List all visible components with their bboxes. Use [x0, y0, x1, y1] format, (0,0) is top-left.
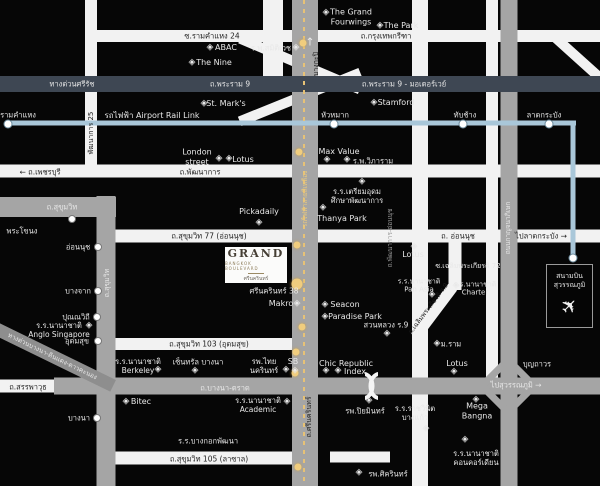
chic-republic-icon-1: ◈	[323, 367, 330, 376]
logo-title: GRAND	[228, 247, 285, 260]
samitivej-icon: ◈	[293, 44, 300, 53]
rajvinit-bangkaew-school-label: ร.ร.ราชวินิต บางแก้ว	[395, 404, 435, 422]
huamak-station-label: หัวหมาก	[321, 111, 349, 120]
arl-latkrabang-dot	[545, 120, 554, 129]
the-park-icon: ◈	[377, 22, 384, 31]
berkeley-icon: ◈	[155, 366, 162, 375]
phatthanakan-road-label: ถ.พัฒนาการ	[180, 168, 221, 177]
vibharam-hospital-label: ร.พ.วิภาราม	[353, 157, 393, 166]
mega-bangna-icon: ◈	[473, 396, 480, 405]
rama9-label: ถ.พระราม 9	[210, 80, 250, 89]
abac-icon: ◈	[207, 44, 214, 53]
pickadaily-label: Pickadaily	[239, 207, 279, 217]
anglo-singapore-icon: ◈	[86, 322, 93, 331]
srinakarin38-label: ศรีนครินทร์ 38	[250, 287, 299, 296]
thanya-park-label: Thanya Park	[317, 214, 366, 224]
vibharam-icon: ◈	[344, 156, 351, 165]
makro-label: Makro	[269, 299, 293, 309]
srinakarin-north-arrow: ↑	[305, 35, 314, 48]
phatthanakan-onnut-road-label: ถ.พัฒนาการ-อ่อนนุช	[387, 209, 395, 268]
yellow-station-dot-5	[299, 324, 306, 331]
bts-udomsuk-dot	[94, 337, 102, 345]
sukhumvit-road-label-vertical: ถ.สุขุมวิท	[103, 269, 111, 298]
expressway-sirat-label: ทางด่วนศรีรัช	[50, 80, 95, 89]
bangna-station-label: บางนา	[68, 414, 90, 423]
road-ramkhamhaeng24-krungthepkreetha	[88, 30, 600, 42]
triamudom-school-label: ร.ร.เตรียมอุดม ศึกษาพัฒนาการ	[331, 187, 383, 205]
st-marks-label: St. Mark's	[206, 99, 245, 109]
kanchanaphisek-road-label: ถนนกาญจนาภิเษก	[505, 202, 513, 255]
onnut-station-label: อ่อนนุช	[66, 243, 90, 252]
thai-nakarin-hospital-label: รพ.ไทย นครินทร์	[250, 357, 278, 375]
sukhumvit77-road-label: ถ.สุขุมวิท 77 (อ่อนนุช)	[171, 232, 246, 241]
airport-rail-link-label: รถไฟฟ้า Airport Rail Link	[104, 111, 199, 121]
charter-school-label: ร.ร.นานาชาติ Charter	[454, 281, 497, 298]
road-kanchanaphisek-west	[486, 0, 498, 378]
ram-university-icon: ◈	[434, 340, 441, 349]
road-top-center-stub	[263, 0, 283, 80]
triamudom-icon: ◈	[359, 178, 366, 187]
bts-punnawithi-dot	[93, 313, 101, 321]
st-marks-icon: ◈	[201, 100, 208, 109]
bts-bangna-dot	[93, 414, 101, 422]
abac-label: ABAC	[215, 43, 237, 53]
logo-thai-name: ศรีนครินทร์	[244, 275, 269, 283]
suvarnabhumi-airport-box: สนามบิน สุวรรณภูมิ ✈	[546, 264, 593, 328]
arl-thapchang-dot	[459, 120, 468, 129]
london-street-label: London street	[182, 147, 211, 166]
sikarin-hospital-label: รพ.ศิครินทร์	[368, 470, 407, 479]
rail-airport-link-branch	[571, 123, 576, 259]
suan-luang-icon: ◈	[384, 330, 391, 339]
ramkhamhaeng-station-label: รามคำแหง	[0, 111, 36, 120]
seacon-icon: ◈	[322, 301, 329, 310]
ram-university-label: ม.ราม	[441, 340, 462, 349]
pan-asia-icon: ◈	[429, 291, 436, 300]
stamford-label: Stamford	[378, 98, 415, 108]
academic-school-label: ร.ร.นานาชาติ Academic	[235, 396, 281, 414]
samitivej-hospital-label: ร.พ.สมิติเวช	[251, 44, 291, 53]
bangchak-station-label: บางจาก	[65, 287, 91, 296]
bangkok-pattana-school-label: ร.ร.บางกอกพัฒนา	[178, 437, 238, 446]
thai-nakarin-icon: ◈	[283, 366, 290, 375]
sikarin-icon: ◈	[356, 469, 363, 478]
concordian-school-label: ร.ร.นานาชาติ คอนคอร์เดียน	[453, 449, 499, 467]
sukhumvit105-road-label: ถ.สุขุมวิท 105 (ลาซาล)	[170, 455, 248, 464]
pickadaily-icon: ◈	[256, 219, 263, 228]
soi-chalermprakiat72-label: ซ.เฉลิมพระเกียรติ 72	[435, 262, 500, 270]
max-value-icon: ◈	[324, 156, 331, 165]
seacon-label: Seacon	[330, 300, 359, 310]
lotus-center-label: Lotus	[402, 250, 424, 260]
thapchang-station-label: ทับช้าง	[454, 111, 477, 120]
yellow-station-dot-3	[294, 242, 301, 249]
boonthavorn-label: บุญถาวร	[523, 360, 551, 369]
charter-icon: ◈	[453, 282, 460, 291]
sukhumvit-road-label: ถ.สุขุมวิท	[47, 203, 78, 212]
bts-bangchak-dot	[94, 287, 102, 295]
yellow-station-dot-6	[293, 349, 300, 356]
yellow-station-dot-8	[295, 464, 302, 471]
grand-bangkok-boulevard-logo: GRAND BANGKOK BOULEVARD ศรีนครินทร์	[225, 247, 287, 283]
road-lasalle-east-segment	[330, 452, 390, 463]
to-latkrabang-label: ไปลาดกระบัง →	[515, 232, 567, 241]
phatthanakan25-label: พัฒนาการ 25	[87, 112, 95, 155]
piyamin-icon: ◈	[366, 397, 373, 406]
arl-huamak-dot	[330, 120, 339, 129]
bitec-label: Bitec	[131, 397, 151, 407]
yellow-line-label: รถไฟฟ้าสายสีเหลือง	[302, 171, 310, 228]
grand-fourwings-icon: ◈	[323, 9, 330, 18]
rama9-motorway-label: ถ.พระราม 9 - มอเตอร์เวย์	[362, 80, 446, 89]
sb-icon: ◈	[292, 367, 299, 376]
london-lotus-icon-1: ◈	[216, 155, 223, 164]
thanya-park-icon: ◈	[320, 204, 327, 213]
piyamin-hospital-label: รพ.ปิยมินทร์	[345, 407, 385, 416]
the-nine-label: The Nine	[196, 58, 232, 68]
map-canvas: GRAND BANGKOK BOULEVARD ศรีนครินทร์ สนาม…	[0, 0, 600, 486]
arl-ramkhamhaeng-dot	[4, 120, 13, 129]
soi-ramkhamhaeng24-label: ซ.รามคำแหง 24	[184, 32, 239, 41]
yellow-station-dot-2	[296, 149, 303, 156]
bangna-trad-road-label: ถ.บางนา-ตราด	[200, 384, 250, 393]
lotus-onnut-icon: ◈	[451, 368, 458, 377]
bitec-icon: ◈	[123, 398, 130, 407]
rajvinit-icon: ◈	[423, 425, 430, 434]
phetchaburi-road-label: ← ถ.เพชรบุรี	[19, 168, 60, 177]
sukhumvit103-road-label: ถ.สุขุมวิท 103 (อุดมสุข)	[169, 340, 249, 349]
central-bangna-icon: ◈	[192, 367, 199, 376]
logo-divider	[248, 273, 264, 274]
srinakarin-road-label: ถ.ศรีนครินทร์	[305, 396, 313, 437]
latkrabang-station-label: ลาดกระบัง	[527, 111, 562, 120]
krungthep-kreetha-label: ถ.กรุงเทพกรีฑา	[361, 32, 412, 41]
bangkapi-label: บางกะปิ	[312, 52, 320, 76]
logo-subtitle: BANGKOK BOULEVARD	[225, 261, 287, 271]
arl-suvarnabhumi-dot	[569, 254, 578, 263]
concordian-icon: ◈	[462, 436, 469, 445]
airplane-icon: ✈	[555, 292, 584, 321]
grand-fourwings-label: The Grand Fourwings	[330, 7, 372, 26]
the-park-label: The Park	[384, 21, 419, 31]
to-suvarnabhumi-label: ไปสุวรรณภูมิ →	[491, 381, 542, 390]
the-nine-icon: ◈	[189, 59, 196, 68]
bts-phrakanong-dot	[68, 215, 76, 223]
academic-icon: ◈	[284, 398, 291, 407]
airport-name: สนามบิน สุวรรณภูมิ	[554, 272, 585, 290]
anglo-singapore-school-label: ร.ร.นานาชาติ Anglo Singapore	[28, 321, 90, 339]
onnut-road-label: ถ. อ่อนนุช	[441, 232, 475, 241]
phrakanong-station-label: พระโขนง	[7, 227, 38, 236]
makro-icon: ◈	[294, 300, 301, 309]
lotus-phatthanakan-label: Lotus	[232, 155, 254, 165]
lotus-center-icon: ◈	[411, 243, 418, 252]
stamford-icon: ◈	[371, 99, 378, 108]
paradise-park-icon: ◈	[322, 313, 329, 322]
bts-onnut-dot	[94, 243, 102, 251]
chic-republic-icon-2: ◈	[335, 367, 342, 376]
sanphawut-road-label: ถ.สรรพาวุธ	[9, 383, 47, 392]
london-lotus-icon-2: ◈	[226, 155, 233, 164]
index-label: Index	[344, 367, 366, 377]
